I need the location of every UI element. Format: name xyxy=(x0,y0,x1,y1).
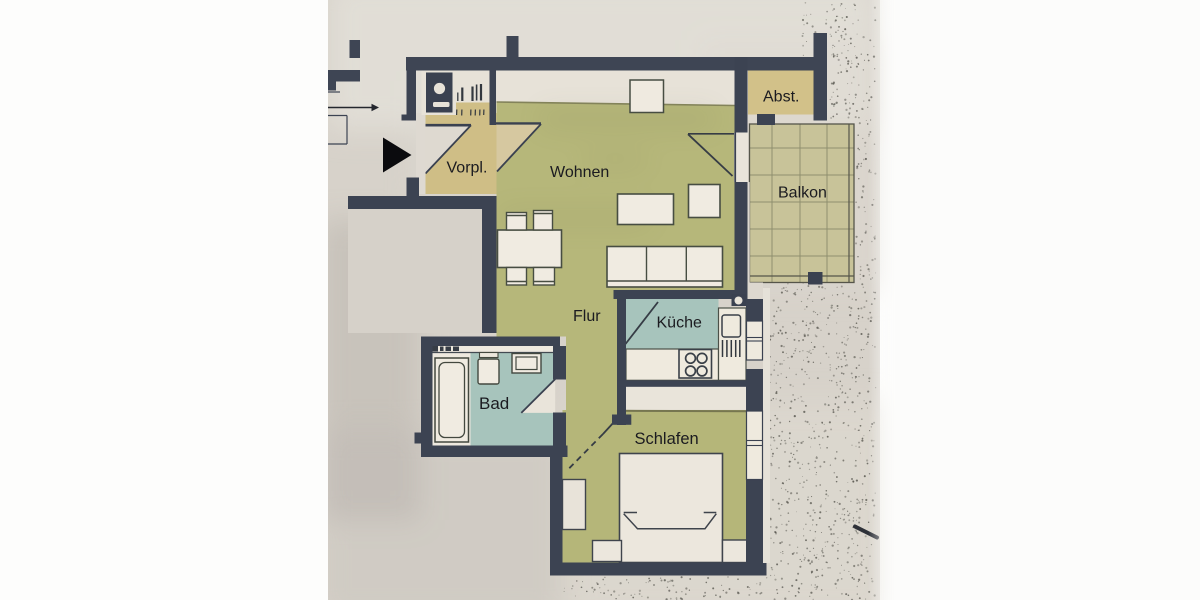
svg-text:Bad: Bad xyxy=(479,394,509,413)
svg-text:Vorpl.: Vorpl. xyxy=(447,160,488,177)
svg-text:Küche: Küche xyxy=(657,315,702,332)
svg-text:Schlafen: Schlafen xyxy=(635,430,699,448)
svg-text:Abst.: Abst. xyxy=(763,89,799,106)
svg-text:Wohnen: Wohnen xyxy=(550,164,609,181)
svg-text:Balkon: Balkon xyxy=(778,185,827,202)
svg-text:Flur: Flur xyxy=(573,308,601,325)
